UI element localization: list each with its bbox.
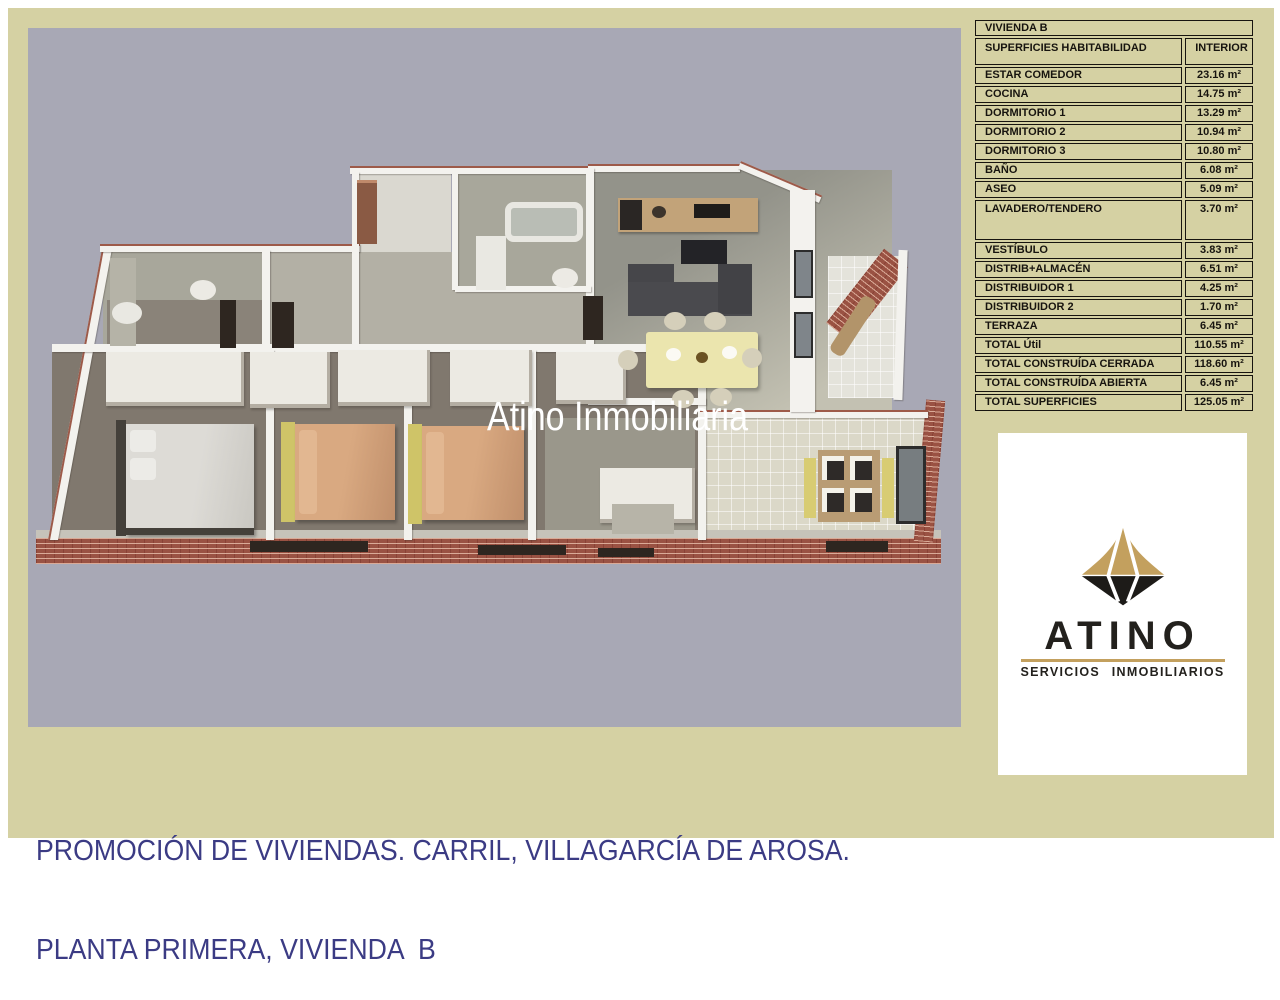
facade-window — [478, 545, 566, 555]
dining-chair — [664, 312, 686, 330]
atino-diamond-icon — [1067, 519, 1179, 609]
window-glass — [794, 312, 813, 358]
table-row-value: 14.75 m² — [1185, 86, 1253, 103]
table-row-value: 4.25 m² — [1185, 280, 1253, 297]
door-opening — [272, 302, 294, 348]
kitchen-cooktop — [694, 204, 730, 218]
wall — [452, 174, 458, 290]
table-row-label: VESTÍBULO — [975, 242, 1182, 259]
closet — [338, 350, 430, 406]
wall — [350, 166, 592, 174]
sink — [112, 302, 142, 324]
place-setting — [850, 456, 872, 480]
caption-line-2: PLANTA PRIMERA, VIVIENDA B — [36, 934, 850, 967]
toilet — [190, 280, 216, 300]
table-row-label: TOTAL SUPERFICIES — [975, 394, 1182, 411]
logo-tagline: SERVICIOS INMOBILIARIOS — [998, 665, 1247, 679]
closet — [250, 352, 330, 408]
kitchen-appliance — [620, 200, 642, 230]
bench — [882, 458, 894, 518]
logo-brand-text: ATINO — [998, 616, 1247, 656]
centerpiece — [696, 352, 708, 363]
tv — [681, 240, 727, 264]
dining-chair — [742, 348, 762, 368]
pillow — [299, 430, 317, 514]
place-setting — [822, 456, 844, 480]
table-title: VIVIENDA B — [975, 20, 1253, 36]
table-row-value: 6.08 m² — [1185, 162, 1253, 179]
agency-logo-box: ATINO SERVICIOS INMOBILIARIOS — [998, 433, 1247, 775]
gallery-window — [896, 446, 926, 524]
place-setting — [822, 488, 844, 512]
wall — [100, 244, 360, 252]
closet — [106, 352, 244, 406]
bathtub — [505, 202, 583, 242]
table-row-value: 5.09 m² — [1185, 181, 1253, 198]
kitchen-sink — [652, 206, 666, 218]
table-row-label: DORMITORIO 1 — [975, 105, 1182, 122]
facade-window — [250, 541, 368, 552]
pillow — [130, 430, 156, 452]
table-row-value: 3.70 m² — [1185, 200, 1253, 240]
table-row-value: 3.83 m² — [1185, 242, 1253, 259]
bed-frame — [116, 420, 126, 536]
plate — [722, 346, 737, 359]
wall — [262, 250, 270, 352]
facade-window — [598, 548, 654, 557]
caption: PROMOCIÓN DE VIVIENDAS. CARRIL, VILLAGAR… — [36, 769, 850, 1000]
surfaces-table: VIVIENDA B SUPERFICIES HABITABILIDAD INT… — [975, 20, 1253, 411]
caption-line-1: PROMOCIÓN DE VIVIENDAS. CARRIL, VILLAGAR… — [36, 835, 850, 868]
table-row-value: 1.70 m² — [1185, 299, 1253, 316]
table-row-label: DISTRIBUIDOR 2 — [975, 299, 1182, 316]
table-row-label: TOTAL Útil — [975, 337, 1182, 354]
pillow — [130, 458, 156, 480]
watermark-text: Atino Inmobiliaria — [487, 393, 748, 440]
table-row-value: 110.55 m² — [1185, 337, 1253, 354]
table-row-label: ASEO — [975, 181, 1182, 198]
table-row-label: TOTAL CONSTRUÍDA ABIERTA — [975, 375, 1182, 392]
table-row-value: 13.29 m² — [1185, 105, 1253, 122]
logo-gold-rule — [1021, 659, 1225, 662]
table-row-label: ESTAR COMEDOR — [975, 67, 1182, 84]
table-row-value: 6.45 m² — [1185, 375, 1253, 392]
door-opening — [583, 296, 603, 340]
table-row-label: TOTAL CONSTRUÍDA CERRADA — [975, 356, 1182, 373]
storage-volume — [612, 504, 674, 534]
laundry-cabinet — [357, 180, 377, 244]
window-glass — [794, 250, 813, 298]
table-row-label: COCINA — [975, 86, 1182, 103]
table-row-label: DISTRIB+ALMACÉN — [975, 261, 1182, 278]
table-row-label: LAVADERO/TENDERO — [975, 200, 1182, 240]
wall — [588, 164, 740, 172]
door-opening — [220, 300, 236, 348]
bathroom-counter — [476, 236, 506, 290]
table-row-value: 10.80 m² — [1185, 143, 1253, 160]
table-row-value: 6.51 m² — [1185, 261, 1253, 278]
dining-chair — [704, 312, 726, 330]
armchair — [718, 264, 752, 314]
table-row-label: TERRAZA — [975, 318, 1182, 335]
table-row-label: DORMITORIO 3 — [975, 143, 1182, 160]
headboard-yellow — [408, 424, 422, 524]
table-header-label: SUPERFICIES HABITABILIDAD — [975, 38, 1182, 65]
table-row-value: 6.45 m² — [1185, 318, 1253, 335]
table-row-value: 23.16 m² — [1185, 67, 1253, 84]
table-row-label: DISTRIBUIDOR 1 — [975, 280, 1182, 297]
table-row-value: 125.05 m² — [1185, 394, 1253, 411]
facade-window — [826, 541, 888, 552]
bench — [804, 458, 816, 518]
headboard-yellow — [281, 422, 295, 522]
table-header-value: INTERIOR — [1185, 38, 1253, 65]
table-row-value: 118.60 m² — [1185, 356, 1253, 373]
wall-living-right — [790, 190, 815, 412]
toilet — [552, 268, 578, 288]
pillow — [426, 432, 444, 514]
table-row-value: 10.94 m² — [1185, 124, 1253, 141]
place-setting — [850, 488, 872, 512]
plate — [666, 348, 681, 361]
bed-frame-foot — [126, 528, 254, 535]
table-row-label: DORMITORIO 2 — [975, 124, 1182, 141]
dining-chair — [618, 350, 638, 370]
table-row-label: BAÑO — [975, 162, 1182, 179]
